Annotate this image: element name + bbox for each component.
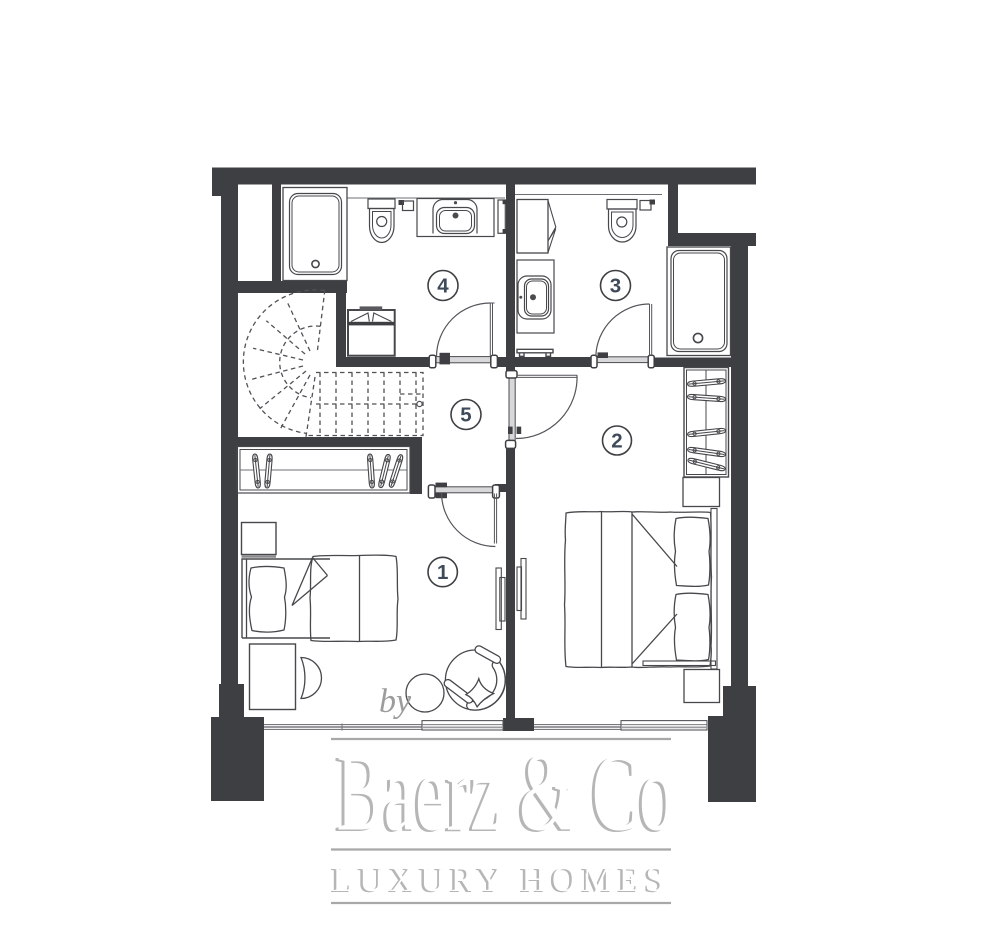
svg-text:1: 1 [437,561,448,584]
svg-text:2: 2 [611,430,622,453]
svg-text:4: 4 [437,275,449,298]
svg-text:by: by [379,683,412,720]
svg-text:LUXURY HOMES: LUXURY HOMES [333,861,671,899]
svg-text:3: 3 [610,275,621,298]
svg-text:Baerz & Co: Baerz & Co [337,732,675,855]
svg-text:5: 5 [460,404,471,427]
